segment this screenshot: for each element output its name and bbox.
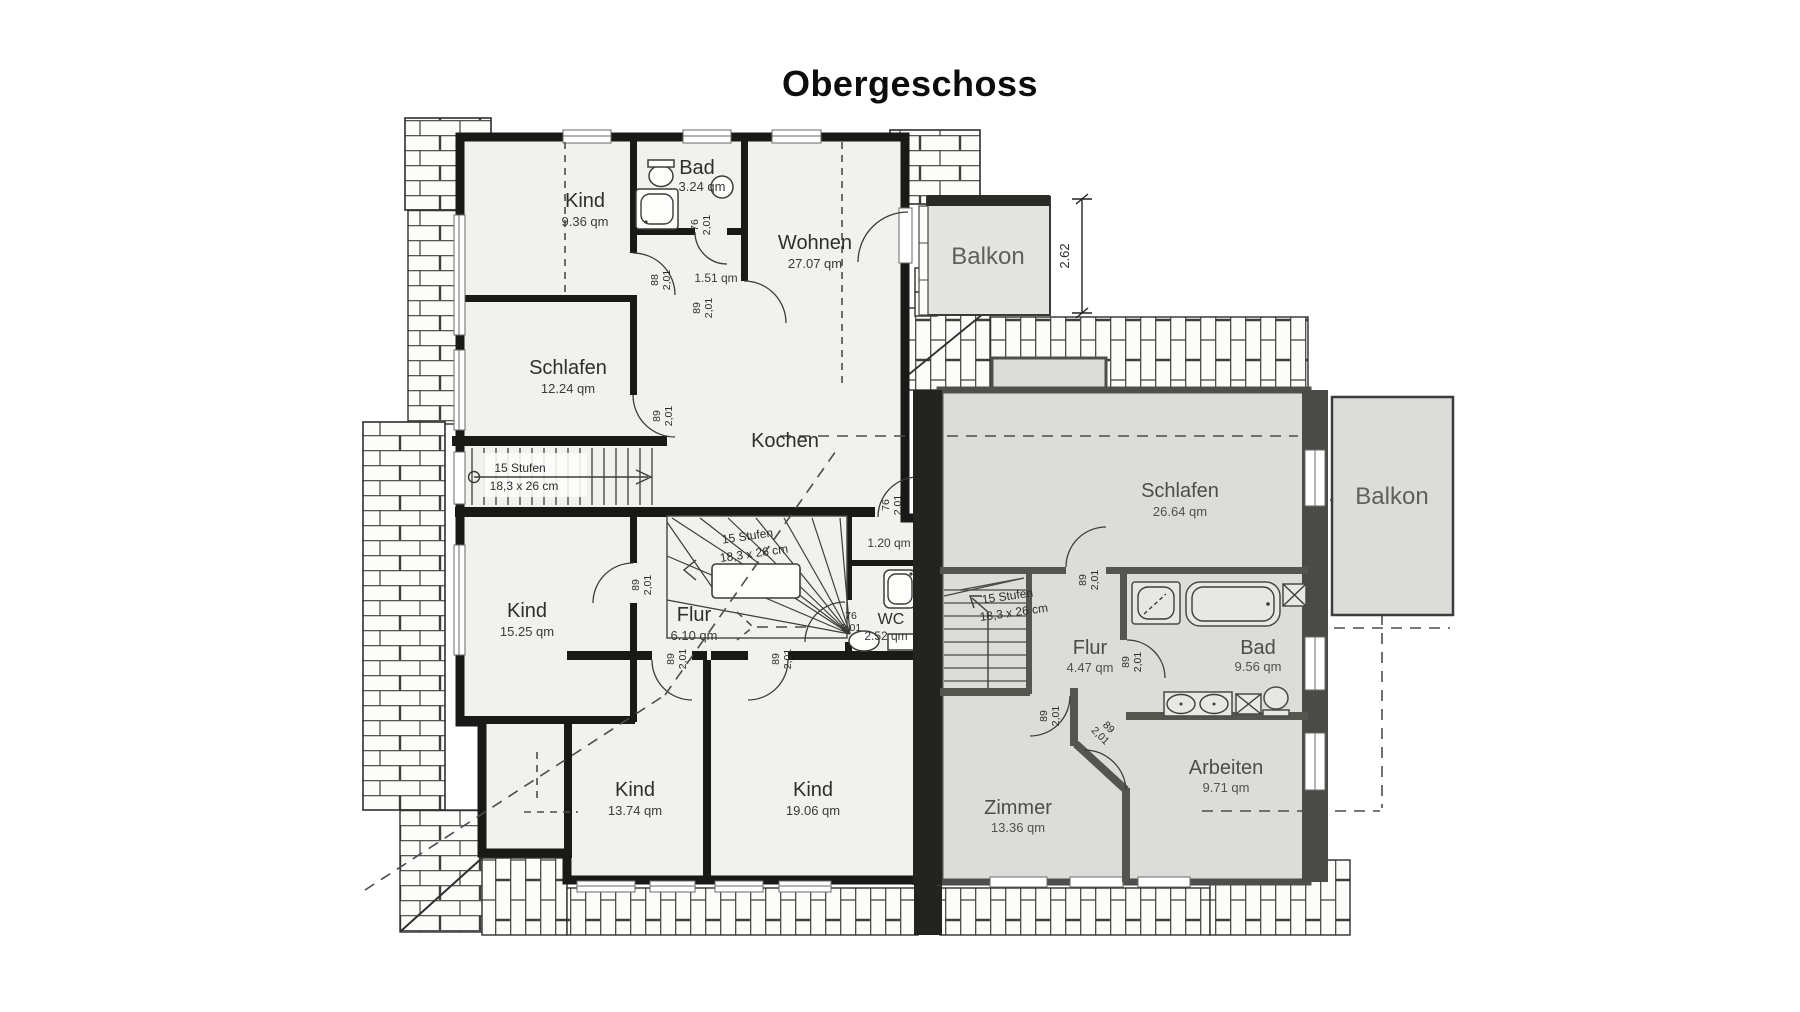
- bathtub-icon: [1186, 582, 1280, 626]
- svg-text:2,01: 2,01: [677, 649, 689, 670]
- svg-text:Flur: Flur: [1073, 637, 1108, 659]
- roof-band-left-lower: [400, 810, 483, 932]
- svg-text:19.06 qm: 19.06 qm: [786, 803, 840, 818]
- svg-text:76: 76: [689, 219, 701, 231]
- party-wall: [913, 390, 942, 885]
- svg-text:89: 89: [665, 653, 677, 665]
- balcony-top: Balkon: [919, 195, 1050, 315]
- room-label-zimmer: Zimmer 13.36 qm: [984, 797, 1052, 835]
- svg-text:2,01: 2,01: [1089, 570, 1101, 591]
- floorplan-svg: Obergeschoss: [0, 0, 1800, 1012]
- svg-text:89: 89: [630, 579, 642, 591]
- svg-text:2,01: 2,01: [661, 270, 673, 291]
- svg-text:9.56 qm: 9.56 qm: [1235, 659, 1282, 674]
- svg-text:9.36 qm: 9.36 qm: [562, 214, 609, 229]
- svg-text:2,01: 2,01: [642, 575, 654, 596]
- balcony-right: Balkon: [1332, 397, 1453, 615]
- roof-band-bottom-right: [940, 888, 1210, 935]
- party-wall-stub: [914, 885, 942, 935]
- svg-text:15.25 qm: 15.25 qm: [500, 624, 554, 639]
- svg-text:4.47 qm: 4.47 qm: [1067, 660, 1114, 675]
- room-label-vestibule: 1.51 qm: [694, 271, 737, 285]
- svg-text:12.24 qm: 12.24 qm: [541, 381, 595, 396]
- svg-text:Bad: Bad: [679, 157, 715, 179]
- svg-text:2,01: 2,01: [892, 495, 904, 516]
- room-label-kind2: Kind 15.25 qm: [500, 600, 554, 639]
- svg-text:89: 89: [1038, 710, 1050, 722]
- toilet2-icon: [1264, 687, 1288, 709]
- svg-text:WC: WC: [878, 611, 905, 628]
- svg-text:Kind: Kind: [565, 190, 605, 212]
- room-label-niche: 1.20 qm: [867, 536, 910, 550]
- roof-band-left-wide: [363, 422, 445, 810]
- svg-text:89: 89: [651, 410, 663, 422]
- svg-text:9.71 qm: 9.71 qm: [1203, 780, 1250, 795]
- svg-text:76: 76: [845, 610, 857, 622]
- dimension-label: 2.62: [1057, 243, 1072, 268]
- shower-tray-icon: [884, 570, 916, 608]
- svg-text:88: 88: [649, 274, 661, 286]
- svg-text:6.10 qm: 6.10 qm: [671, 628, 718, 643]
- roof-band-bottom-step: [482, 858, 567, 935]
- svg-text:2,01: 2,01: [701, 215, 713, 236]
- svg-text:18,3 x 26 cm: 18,3 x 26 cm: [490, 479, 559, 493]
- balcony-dimension: 2.62: [1057, 194, 1092, 318]
- svg-text:13.36 qm: 13.36 qm: [991, 820, 1045, 835]
- svg-text:Kind: Kind: [793, 779, 833, 801]
- svg-text:89: 89: [770, 653, 782, 665]
- svg-text:89: 89: [691, 302, 703, 314]
- toilet-icon: [649, 166, 673, 187]
- svg-text:2,01: 2,01: [663, 406, 675, 427]
- room-label-kind4: Kind 19.06 qm: [786, 779, 840, 818]
- svg-text:89: 89: [1077, 574, 1089, 586]
- svg-text:Schlafen: Schlafen: [1141, 480, 1219, 502]
- svg-text:2,01: 2,01: [841, 622, 862, 634]
- svg-text:2,01: 2,01: [782, 649, 794, 670]
- svg-text:Schlafen: Schlafen: [529, 357, 607, 379]
- svg-text:27.07 qm: 27.07 qm: [788, 256, 842, 271]
- floorplan-canvas: Obergeschoss: [0, 0, 1800, 1012]
- svg-text:76: 76: [880, 499, 892, 511]
- svg-text:Wohnen: Wohnen: [778, 232, 852, 254]
- svg-text:Bad: Bad: [1240, 637, 1276, 659]
- room-label-flur2: Flur 4.47 qm: [1067, 637, 1114, 675]
- balcony-right-label: Balkon: [1355, 483, 1428, 510]
- room-label-kind3: Kind 13.74 qm: [608, 779, 662, 818]
- room-label-kochen: Kochen: [751, 430, 819, 452]
- svg-text:15 Stufen: 15 Stufen: [494, 461, 545, 475]
- roof-band-bottom-left: [567, 888, 918, 935]
- balcony-top-label: Balkon: [951, 243, 1024, 270]
- svg-text:3.24 qm: 3.24 qm: [679, 179, 726, 194]
- svg-text:2,01: 2,01: [703, 298, 715, 319]
- svg-text:13.74 qm: 13.74 qm: [608, 803, 662, 818]
- room-label-bad2: Bad 9.56 qm: [1235, 637, 1282, 674]
- svg-text:2.52 qm: 2.52 qm: [864, 629, 907, 643]
- svg-text:2,01: 2,01: [1050, 706, 1062, 727]
- svg-text:2,01: 2,01: [1132, 652, 1144, 673]
- svg-text:26.64 qm: 26.64 qm: [1153, 504, 1207, 519]
- svg-text:89: 89: [1120, 656, 1132, 668]
- room-label-wohnen: Wohnen 27.07 qm: [778, 232, 852, 271]
- room-label-flur1: Flur 6.10 qm: [671, 604, 718, 643]
- svg-text:Arbeiten: Arbeiten: [1189, 757, 1264, 779]
- svg-text:Zimmer: Zimmer: [984, 797, 1052, 819]
- roof-band-left-upper: [408, 210, 458, 424]
- room-label-kind1: Kind 9.36 qm: [562, 190, 609, 229]
- shower-icon: [636, 189, 678, 229]
- svg-text:Kind: Kind: [615, 779, 655, 801]
- page-title: Obergeschoss: [782, 63, 1038, 104]
- balcony-railing: [919, 206, 928, 315]
- svg-text:Kind: Kind: [507, 600, 547, 622]
- svg-text:Flur: Flur: [677, 604, 712, 626]
